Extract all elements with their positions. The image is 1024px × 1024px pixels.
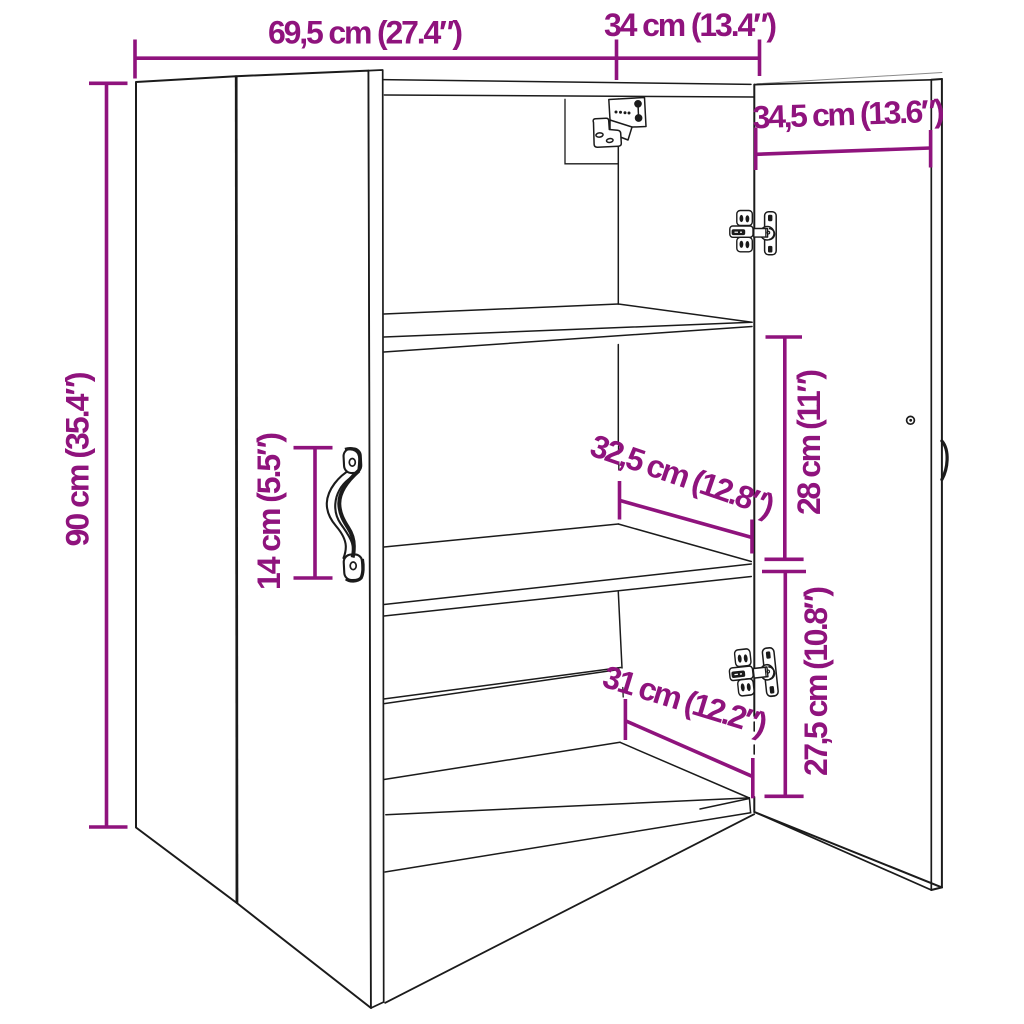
svg-text:90 cm (35.4″): 90 cm (35.4″): [60, 372, 96, 547]
svg-text:69,5 cm (27.4″): 69,5 cm (27.4″): [268, 15, 463, 51]
svg-text:14 cm (5.5″): 14 cm (5.5″): [251, 432, 287, 590]
svg-text:27,5 cm (10.8″): 27,5 cm (10.8″): [798, 586, 834, 776]
svg-text:34,5 cm (13.6″): 34,5 cm (13.6″): [752, 93, 945, 136]
svg-text:34 cm (13.4″): 34 cm (13.4″): [604, 7, 777, 43]
svg-text:28 cm (11″): 28 cm (11″): [791, 369, 827, 515]
